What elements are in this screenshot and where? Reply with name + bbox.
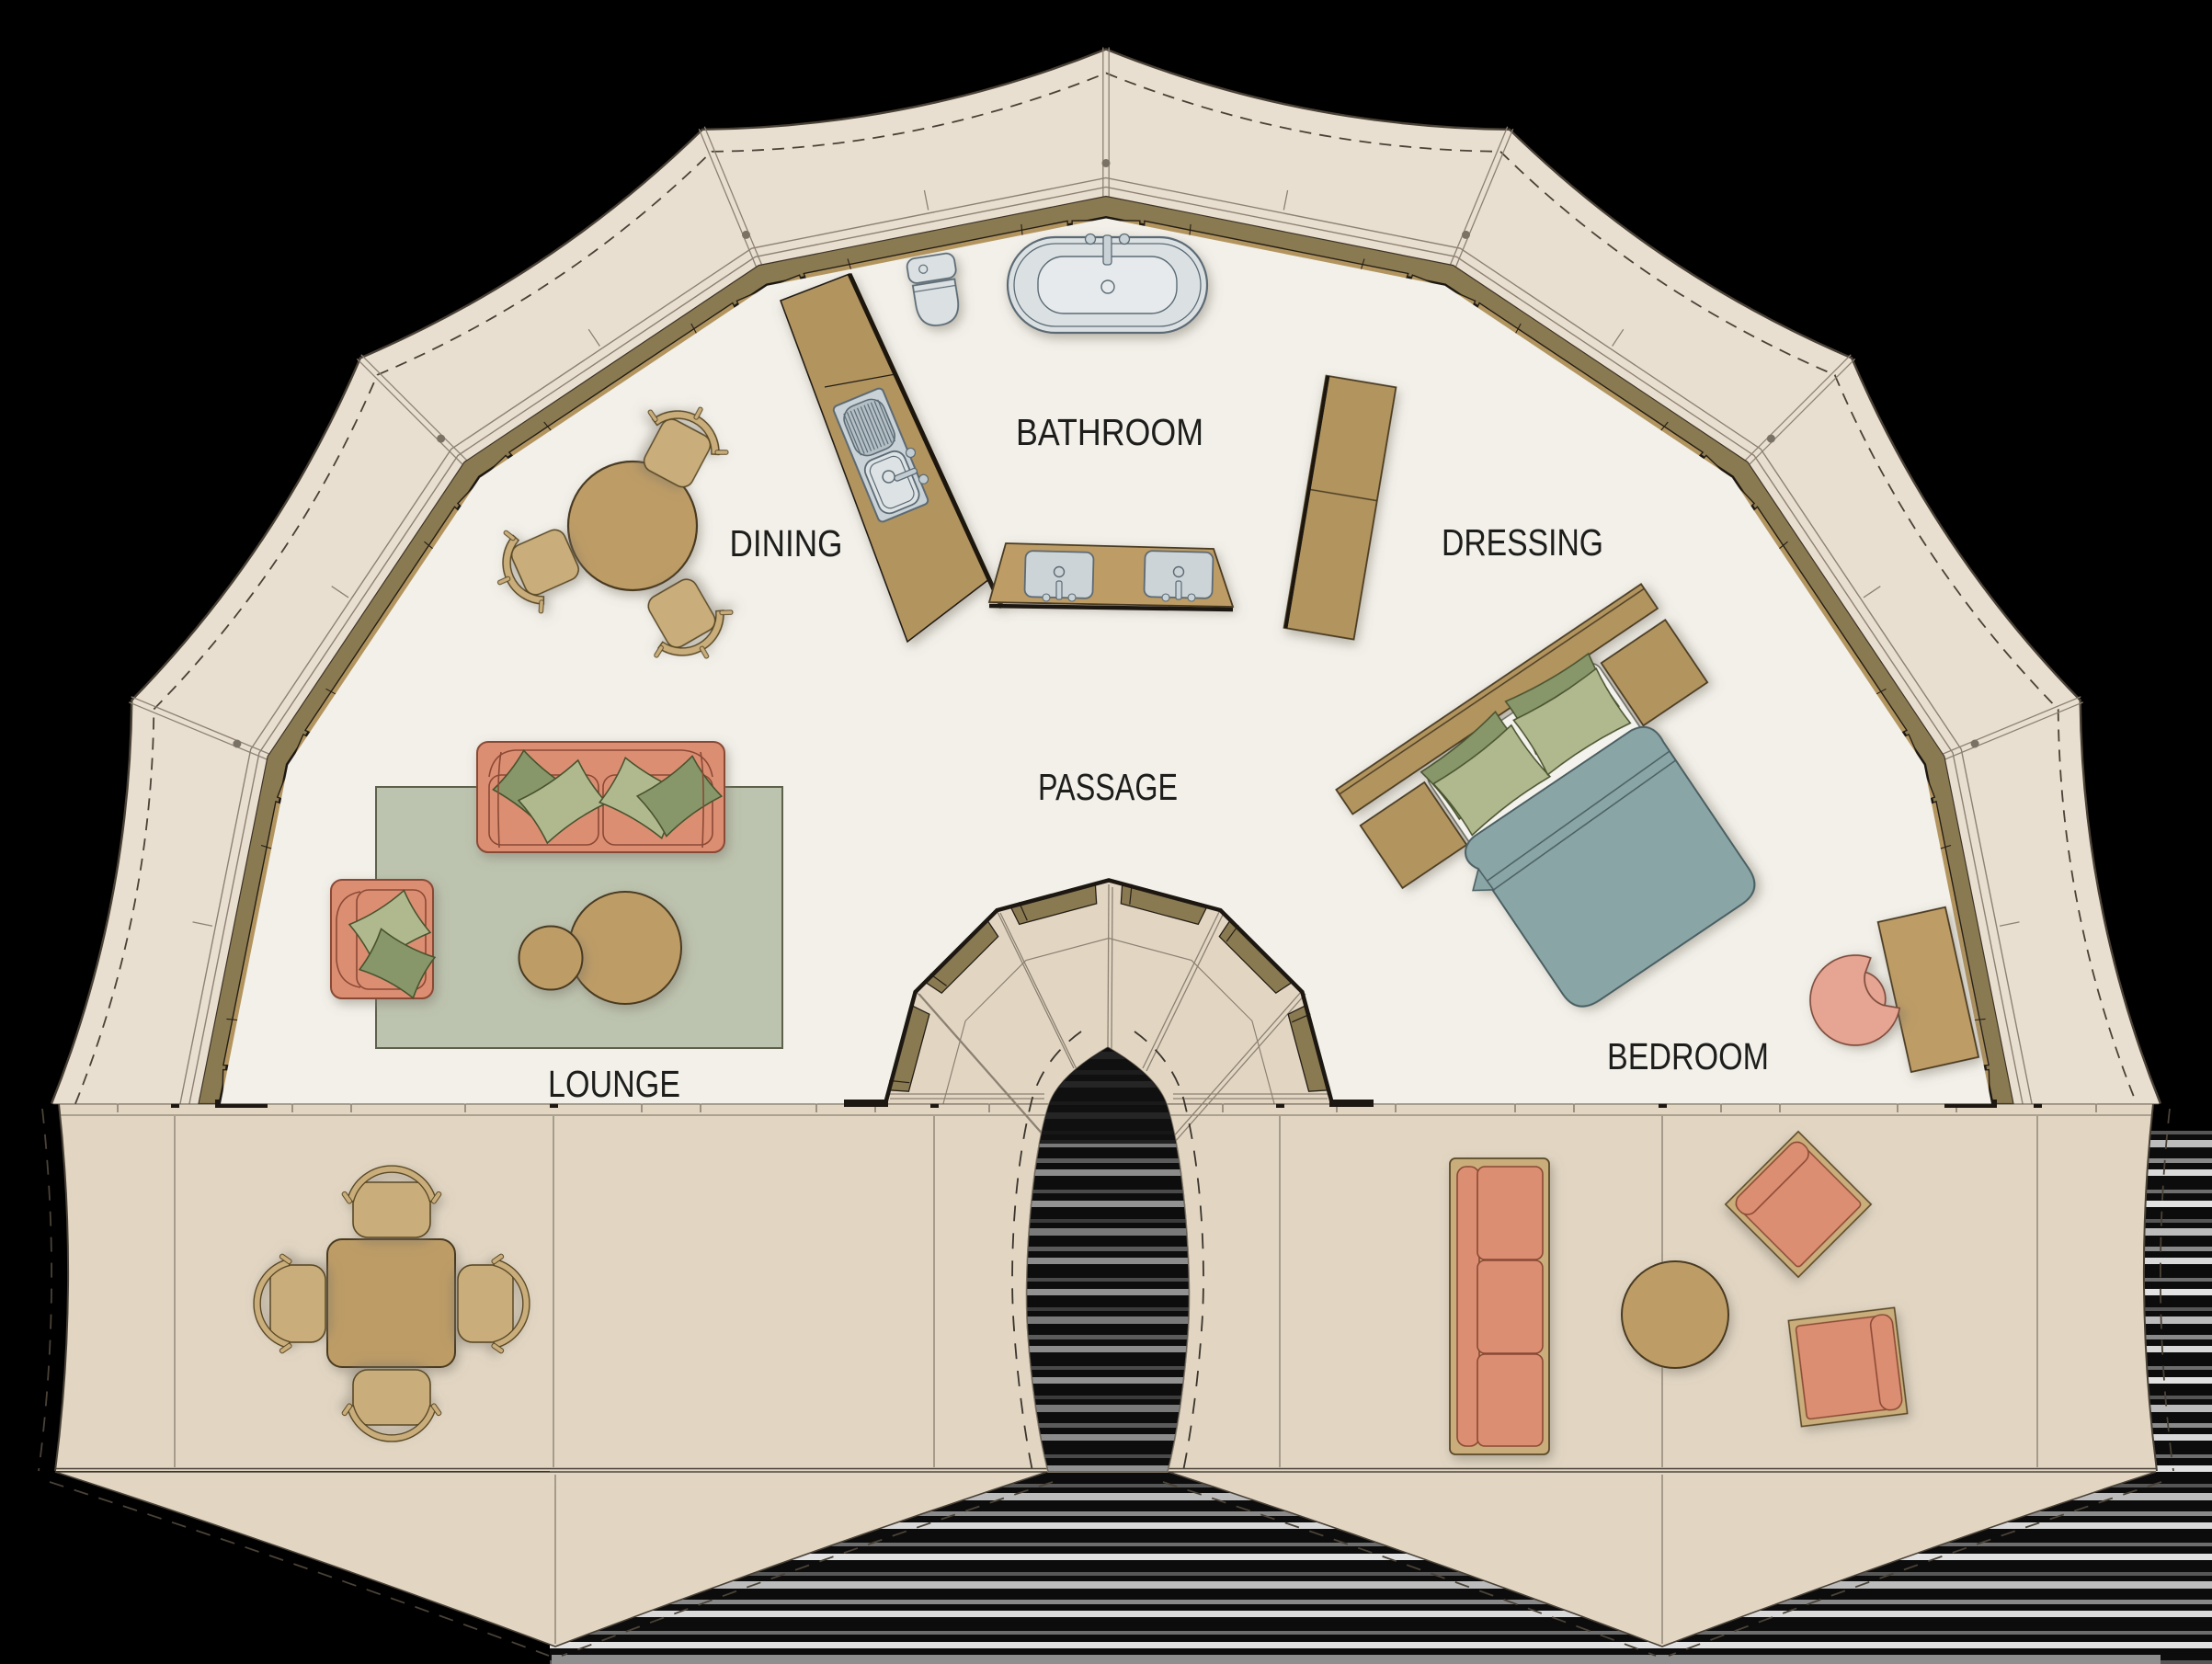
- svg-text:BATHROOM: BATHROOM: [1016, 411, 1203, 453]
- svg-text:BEDROOM: BEDROOM: [1607, 1035, 1769, 1077]
- svg-text:DRESSING: DRESSING: [1442, 521, 1603, 564]
- svg-text:LOUNGE: LOUNGE: [548, 1063, 680, 1105]
- svg-text:DINING: DINING: [730, 522, 843, 564]
- svg-text:PASSAGE: PASSAGE: [1038, 766, 1178, 808]
